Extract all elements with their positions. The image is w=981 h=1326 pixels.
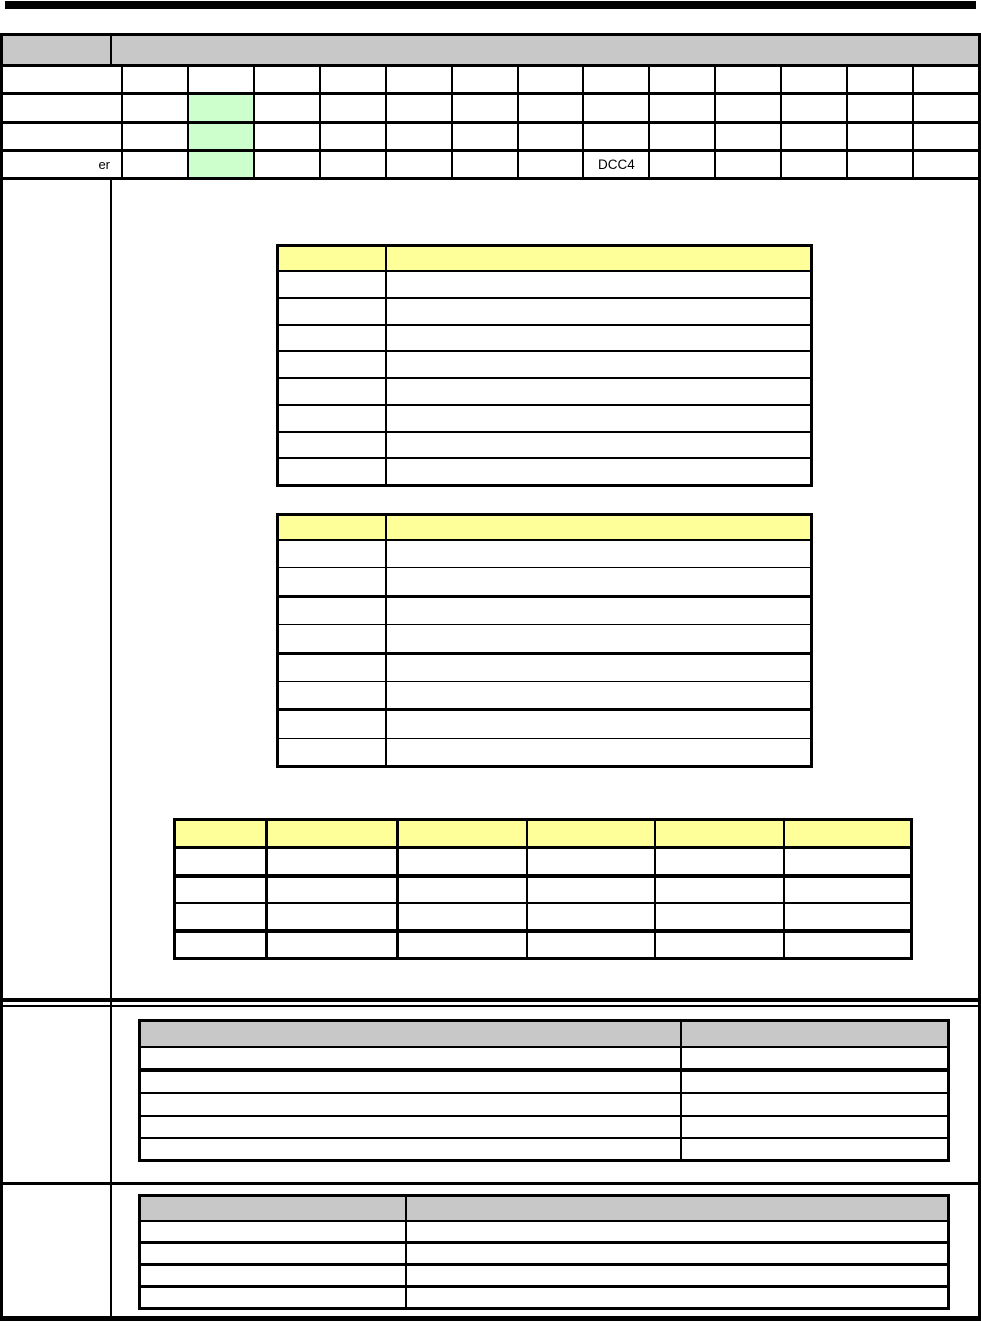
table-cell [268, 849, 399, 874]
table-cell [407, 1288, 947, 1307]
table-row [279, 568, 810, 597]
table-cell [279, 272, 387, 297]
grid-cell-highlighted [189, 152, 255, 177]
table-cell [279, 682, 387, 708]
table-cell [399, 904, 528, 929]
table-row [279, 433, 810, 460]
section-divider-1 [3, 998, 978, 1002]
register-grid-header-row [3, 36, 978, 67]
grid-cell [914, 124, 978, 149]
header-cell [268, 821, 399, 846]
table-row [279, 379, 810, 406]
grid-cell [650, 67, 716, 92]
table-cell [279, 406, 387, 431]
table-row [141, 1222, 947, 1244]
table-cell [279, 459, 387, 484]
table-cell [399, 878, 528, 903]
table-row [279, 406, 810, 433]
register-grid-row-label [3, 95, 123, 120]
table-cell [141, 1094, 682, 1114]
header-cell [387, 247, 810, 270]
grid-cell [453, 152, 519, 177]
grid-cell [848, 124, 914, 149]
table-row [279, 459, 810, 484]
grid-cell [255, 124, 321, 149]
grid-cell [914, 95, 978, 120]
grid-cell [848, 67, 914, 92]
table-cell [785, 904, 910, 929]
table-cell [387, 272, 810, 297]
header-cell [785, 821, 910, 846]
table-cell [141, 1288, 407, 1307]
table-cell [682, 1094, 947, 1114]
table-cell [387, 352, 810, 377]
register-grid-row-2 [3, 95, 978, 123]
field-table-1 [276, 244, 813, 487]
grid-cell [255, 67, 321, 92]
grid-cell [782, 67, 848, 92]
register-grid-table: er DCC4 [0, 33, 981, 180]
grid-cell-highlighted [189, 95, 255, 120]
table-cell [279, 739, 387, 765]
table-row [279, 326, 810, 353]
header-cell [387, 516, 810, 539]
table-row [141, 1266, 947, 1288]
header-cell [682, 1022, 947, 1046]
table-cell [682, 1139, 947, 1159]
table-cell [387, 598, 810, 624]
table-cell [141, 1048, 682, 1068]
table-row [141, 1048, 947, 1072]
table-cell [785, 878, 910, 903]
table-row [279, 598, 810, 625]
table-cell [387, 299, 810, 324]
table-cell [387, 711, 810, 737]
section-divider-1b [3, 1005, 978, 1007]
grid-cell [255, 95, 321, 120]
grid-cell [848, 152, 914, 177]
table-cell [141, 1266, 407, 1285]
table-cell [387, 406, 810, 431]
grid-cell [650, 152, 716, 177]
grid-cell [453, 67, 519, 92]
table-cell [279, 433, 387, 458]
summary-table-header [176, 821, 910, 849]
table-cell [387, 655, 810, 681]
table-cell [279, 541, 387, 567]
table-cell [268, 878, 399, 903]
table-cell [279, 352, 387, 377]
table-cell [387, 739, 810, 765]
table-cell [279, 655, 387, 681]
table-row [279, 272, 810, 299]
grid-cell [453, 95, 519, 120]
table-row [141, 1117, 947, 1139]
table-cell [279, 711, 387, 737]
table-cell [387, 433, 810, 458]
header-cell [176, 821, 268, 846]
table-cell [387, 682, 810, 708]
grid-cell [782, 152, 848, 177]
table-cell [141, 1139, 682, 1159]
table-cell [387, 625, 810, 651]
field-table-1-header [279, 247, 810, 272]
grid-cell [584, 95, 650, 120]
grid-cell [716, 124, 782, 149]
table-cell [176, 878, 268, 903]
table-cell [268, 904, 399, 929]
table-cell [682, 1072, 947, 1092]
grid-cell [387, 152, 453, 177]
table-cell [279, 568, 387, 594]
grid-cell [584, 124, 650, 149]
header-cell [407, 1197, 947, 1220]
grid-cell [650, 95, 716, 120]
grid-cell [321, 95, 387, 120]
table-cell [279, 625, 387, 651]
grid-cell [519, 152, 585, 177]
table-cell [279, 326, 387, 351]
grid-cell [914, 67, 978, 92]
grid-cell [123, 152, 189, 177]
table-row [279, 625, 810, 654]
table-row [279, 739, 810, 765]
grid-cell [453, 124, 519, 149]
top-rule [5, 1, 976, 9]
table-cell [387, 379, 810, 404]
register-grid-row-label: er [3, 152, 123, 177]
table-row [141, 1072, 947, 1094]
table-row [176, 878, 910, 905]
table-cell [407, 1266, 947, 1285]
table-cell [387, 541, 810, 567]
grid-cell [650, 124, 716, 149]
grid-cell [716, 95, 782, 120]
summary-table [173, 818, 913, 960]
table-row [176, 849, 910, 878]
table-cell [528, 878, 656, 903]
table-cell [176, 849, 268, 874]
table-cell [682, 1048, 947, 1068]
page-body [0, 180, 981, 1321]
table-row [176, 904, 910, 933]
grid-cell [782, 95, 848, 120]
register-grid-header-span-cell [112, 36, 978, 64]
table-row [279, 299, 810, 326]
register-grid-row-3 [3, 124, 978, 152]
grid-cell [584, 67, 650, 92]
table-row [141, 1288, 947, 1307]
bit-name-cell: DCC4 [584, 152, 650, 177]
note-table-2 [138, 1194, 950, 1310]
grid-cell [123, 124, 189, 149]
header-cell [279, 247, 387, 270]
grid-cell [321, 152, 387, 177]
table-cell [279, 379, 387, 404]
table-cell [141, 1222, 407, 1241]
table-row [279, 655, 810, 682]
table-row [279, 711, 810, 738]
header-cell [399, 821, 528, 846]
table-row [176, 933, 910, 958]
table-cell [399, 933, 528, 958]
header-cell [141, 1197, 407, 1220]
table-row [279, 541, 810, 568]
grid-cell [123, 67, 189, 92]
grid-cell [123, 95, 189, 120]
table-cell [268, 933, 399, 958]
section-divider-2 [3, 1182, 978, 1185]
table-row [141, 1139, 947, 1159]
table-cell [528, 933, 656, 958]
table-row [279, 682, 810, 711]
grid-cell [321, 124, 387, 149]
note-table-1 [138, 1019, 950, 1162]
grid-cell [321, 67, 387, 92]
table-cell [785, 849, 910, 874]
note-table-1-header [141, 1022, 947, 1048]
table-cell [656, 904, 785, 929]
table-row [141, 1094, 947, 1116]
table-cell [176, 904, 268, 929]
table-row [141, 1244, 947, 1266]
table-cell [387, 568, 810, 594]
register-grid-row-label [3, 124, 123, 149]
grid-cell [716, 67, 782, 92]
table-cell [682, 1117, 947, 1137]
register-grid-row-1 [3, 67, 978, 95]
table-cell [176, 933, 268, 958]
header-cell [279, 516, 387, 539]
grid-cell [255, 152, 321, 177]
grid-cell [387, 67, 453, 92]
table-cell [407, 1244, 947, 1263]
grid-cell [848, 95, 914, 120]
grid-cell [716, 152, 782, 177]
table-cell [528, 904, 656, 929]
table-cell [656, 849, 785, 874]
register-grid-row-4: er DCC4 [3, 152, 978, 177]
table-cell [279, 598, 387, 624]
grid-cell [519, 124, 585, 149]
table-cell [279, 299, 387, 324]
grid-cell [387, 95, 453, 120]
table-cell [399, 849, 528, 874]
grid-cell-highlighted [189, 124, 255, 149]
register-grid-row-label [3, 67, 123, 92]
table-cell [528, 849, 656, 874]
grid-cell [782, 124, 848, 149]
register-grid-header-label-cell [3, 36, 112, 64]
grid-cell [914, 152, 978, 177]
label-column-divider [110, 180, 112, 1316]
grid-cell [189, 67, 255, 92]
table-cell [387, 326, 810, 351]
header-cell [656, 821, 785, 846]
field-table-2-header [279, 516, 810, 541]
table-cell [141, 1117, 682, 1137]
table-cell [387, 459, 810, 484]
grid-cell [519, 67, 585, 92]
field-table-2 [276, 513, 813, 768]
table-row [279, 352, 810, 379]
table-cell [656, 933, 785, 958]
note-table-2-header [141, 1197, 947, 1222]
table-cell [656, 878, 785, 903]
grid-cell [387, 124, 453, 149]
table-cell [141, 1072, 682, 1092]
table-cell [141, 1244, 407, 1263]
table-cell [785, 933, 910, 958]
grid-cell [519, 95, 585, 120]
header-cell [141, 1022, 682, 1046]
header-cell [528, 821, 656, 846]
table-cell [407, 1222, 947, 1241]
